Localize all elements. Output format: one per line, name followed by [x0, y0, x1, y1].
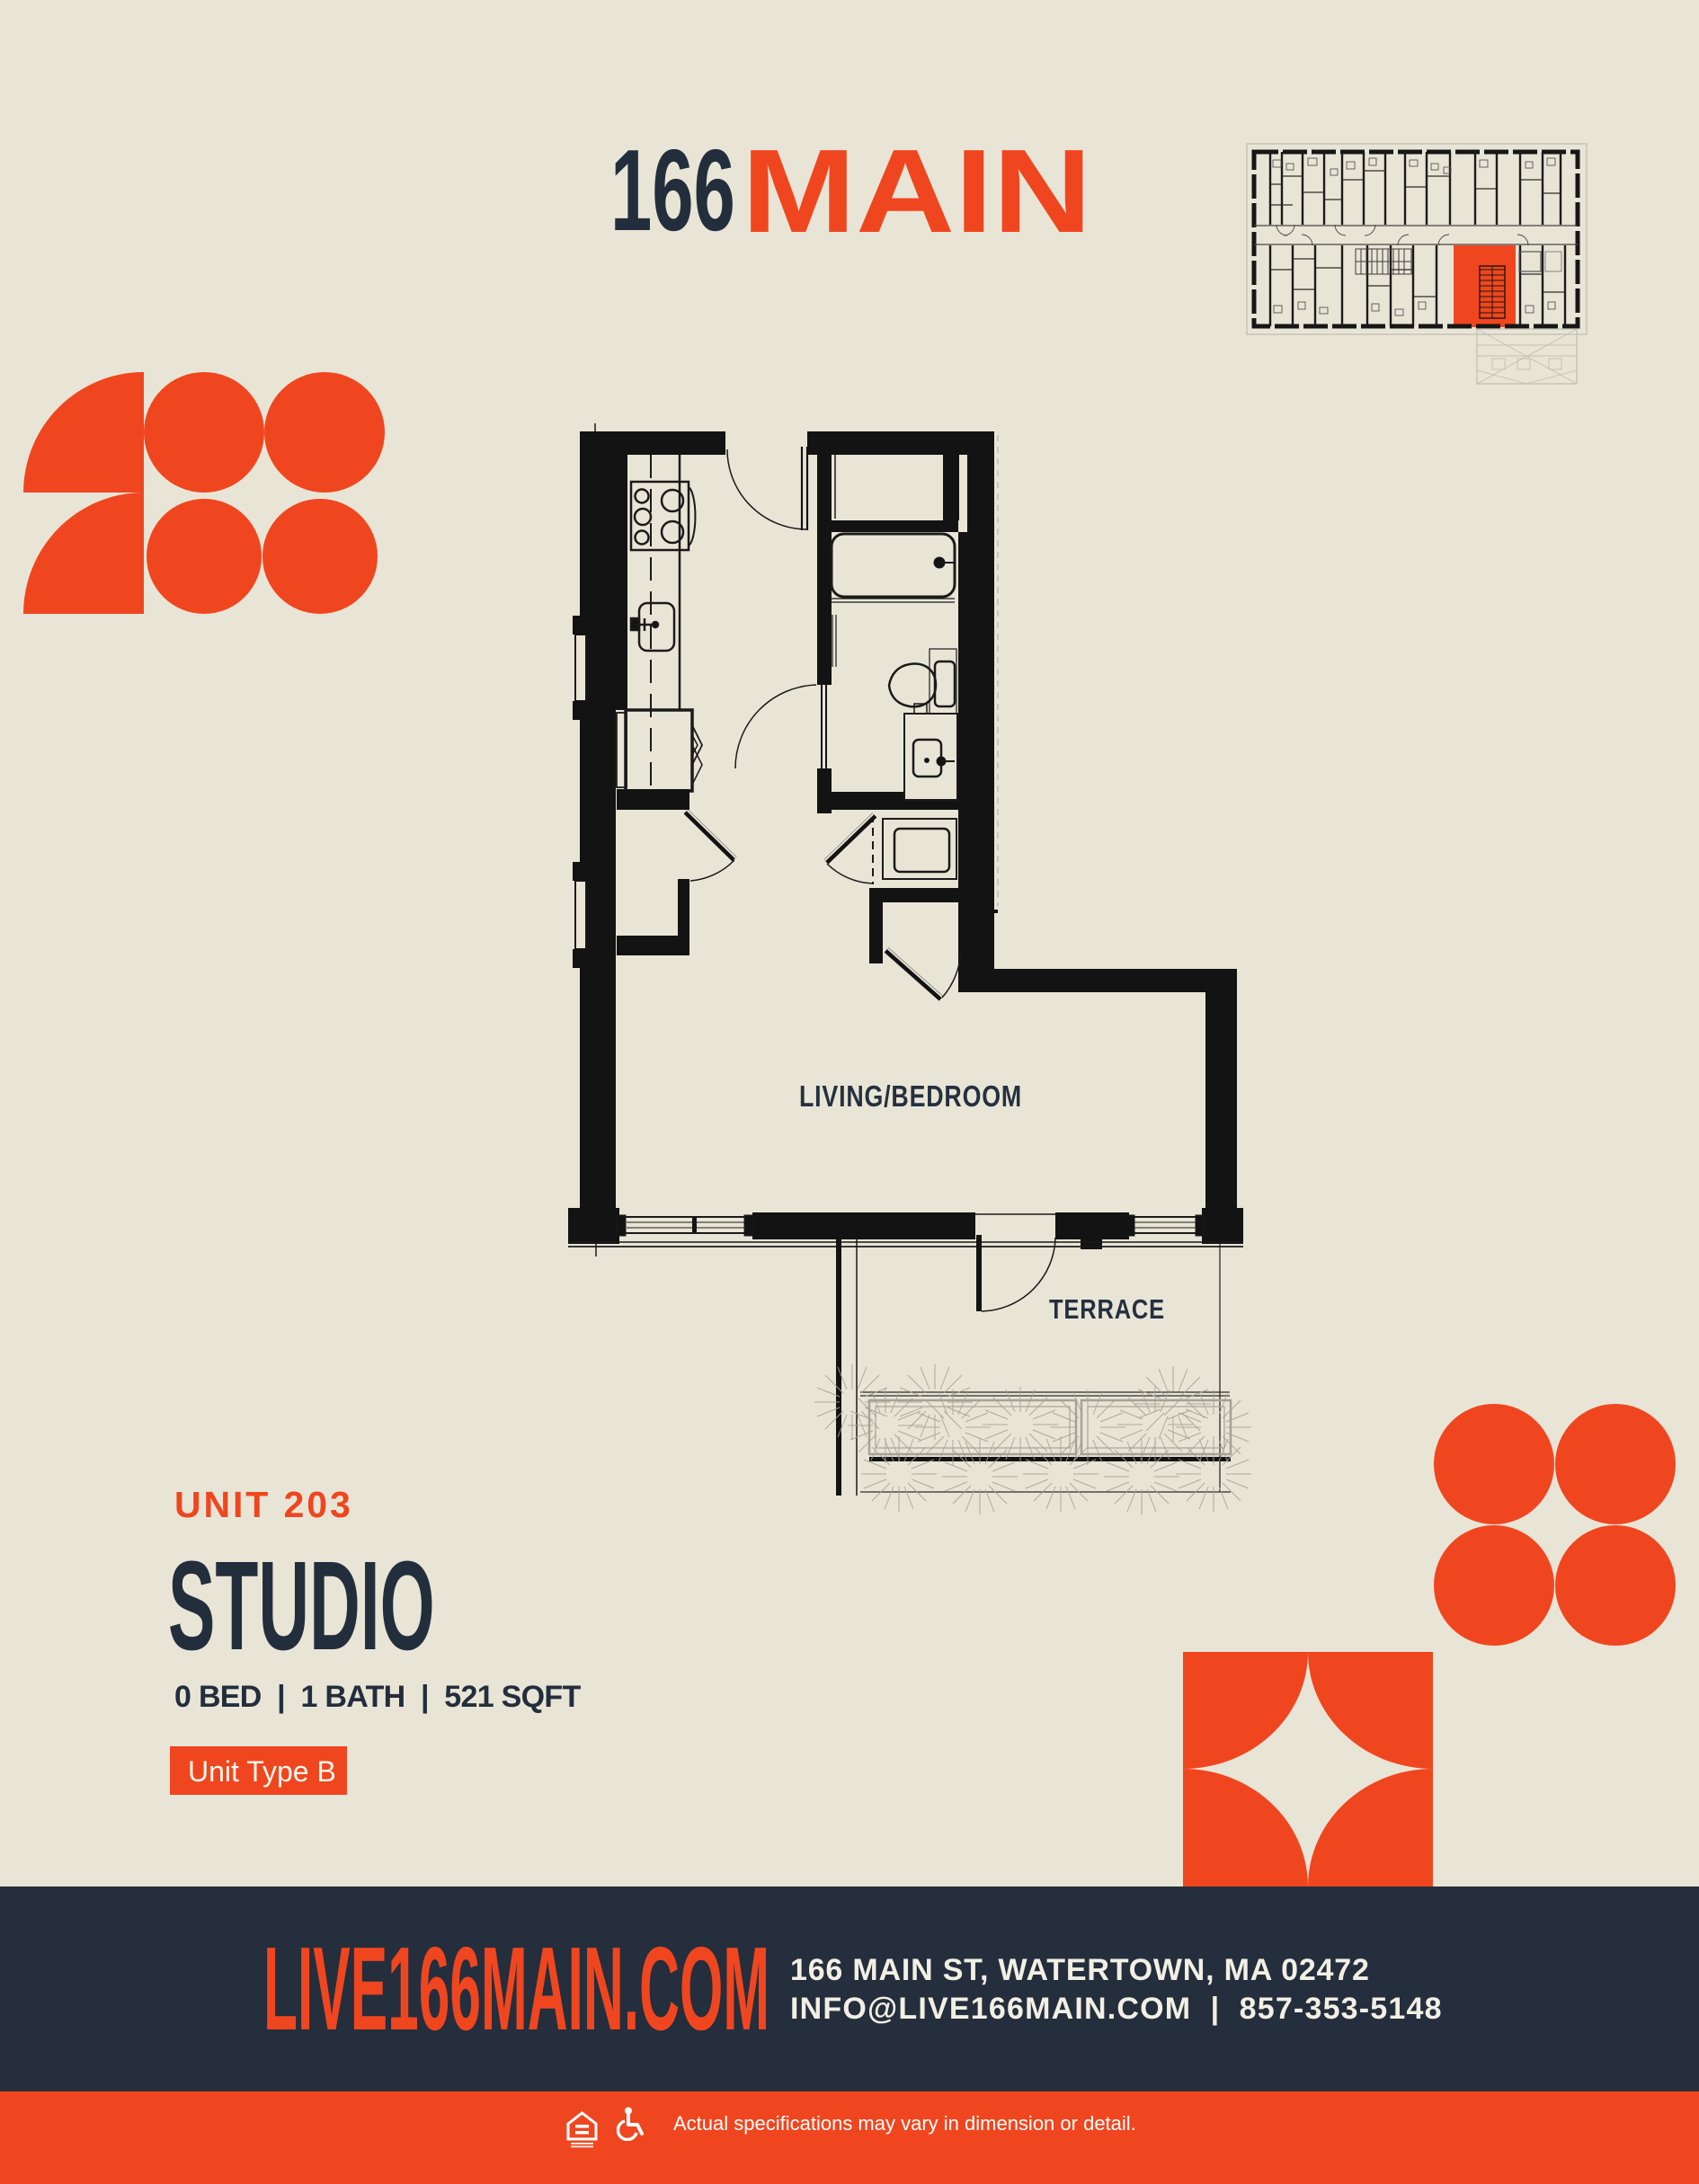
svg-text:LIVING/BEDROOM: LIVING/BEDROOM: [799, 1079, 1022, 1113]
svg-text:TERRACE: TERRACE: [1049, 1293, 1165, 1325]
